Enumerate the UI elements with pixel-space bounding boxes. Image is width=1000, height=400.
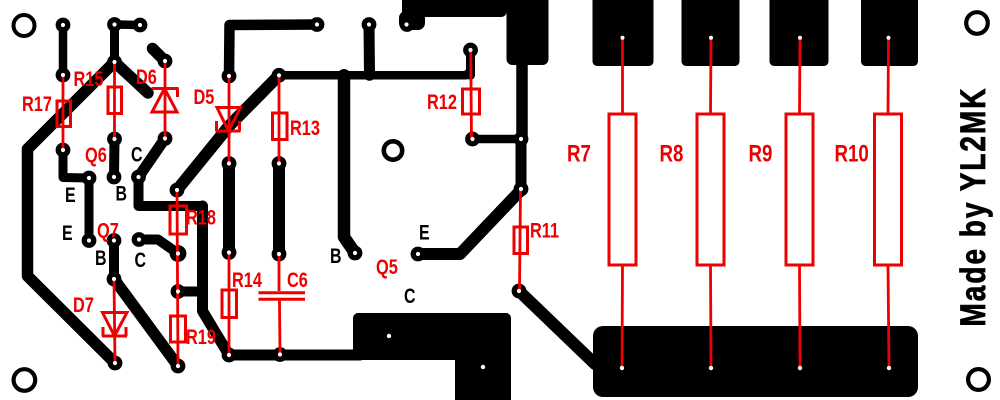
- svg-text:C6: C6: [287, 269, 308, 293]
- svg-text:R10: R10: [835, 140, 869, 167]
- svg-text:C: C: [404, 284, 416, 308]
- svg-text:E: E: [62, 221, 73, 245]
- svg-text:R17: R17: [22, 93, 52, 117]
- svg-text:B: B: [330, 244, 342, 268]
- svg-text:E: E: [65, 183, 76, 207]
- svg-text:D7: D7: [73, 294, 94, 318]
- svg-text:Q6: Q6: [85, 144, 107, 168]
- svg-text:B: B: [116, 181, 128, 205]
- svg-text:R9: R9: [749, 140, 773, 167]
- svg-text:B: B: [95, 246, 107, 270]
- svg-text:Made by YL2MK: Made by YL2MK: [954, 87, 993, 327]
- svg-text:R7: R7: [567, 140, 591, 167]
- svg-text:R13: R13: [290, 117, 320, 141]
- svg-text:R8: R8: [660, 140, 684, 167]
- svg-text:Q5: Q5: [376, 256, 398, 280]
- svg-text:D5: D5: [194, 86, 215, 110]
- svg-text:Q7: Q7: [97, 219, 119, 243]
- svg-text:R15: R15: [74, 68, 104, 92]
- svg-text:R14: R14: [232, 269, 262, 293]
- svg-text:R11: R11: [530, 219, 559, 243]
- svg-text:R19: R19: [186, 326, 216, 350]
- svg-text:R18: R18: [186, 206, 216, 230]
- svg-text:D6: D6: [136, 66, 157, 90]
- svg-text:C: C: [135, 248, 147, 272]
- svg-text:R12: R12: [427, 91, 457, 115]
- svg-text:C: C: [131, 142, 143, 166]
- svg-text:E: E: [419, 220, 430, 244]
